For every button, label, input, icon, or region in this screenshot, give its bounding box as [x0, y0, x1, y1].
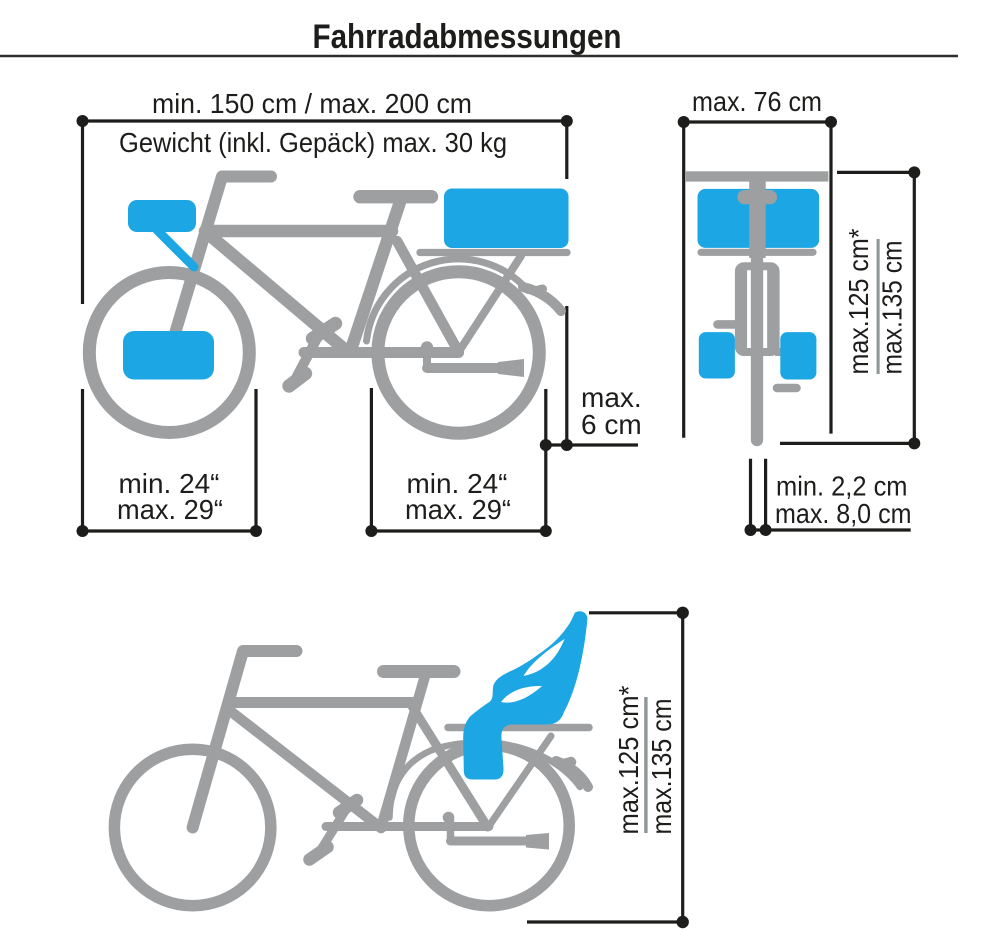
svg-text:max.125 cm*: max.125 cm* — [613, 685, 644, 834]
svg-text:Gewicht (inkl. Gepäck) max. 30: Gewicht (inkl. Gepäck) max. 30 kg — [119, 127, 507, 158]
svg-text:max. 29“: max. 29“ — [117, 494, 223, 525]
svg-text:max. 29“: max. 29“ — [405, 494, 511, 525]
svg-text:max.135 cm: max.135 cm — [646, 699, 677, 835]
svg-text:max. 76 cm: max. 76 cm — [692, 86, 822, 117]
svg-text:min. 150 cm / max. 200 cm: min. 150 cm / max. 200 cm — [152, 88, 472, 119]
svg-text:Fahrradabmessungen: Fahrradabmessungen — [313, 18, 622, 56]
svg-text:max.125 cm*: max.125 cm* — [843, 228, 874, 374]
svg-text:max. 8,0 cm: max. 8,0 cm — [775, 498, 912, 529]
svg-text:min. 2,2 cm: min. 2,2 cm — [776, 471, 908, 502]
svg-text:6 cm: 6 cm — [581, 409, 642, 440]
svg-text:max.135 cm: max.135 cm — [877, 241, 908, 375]
